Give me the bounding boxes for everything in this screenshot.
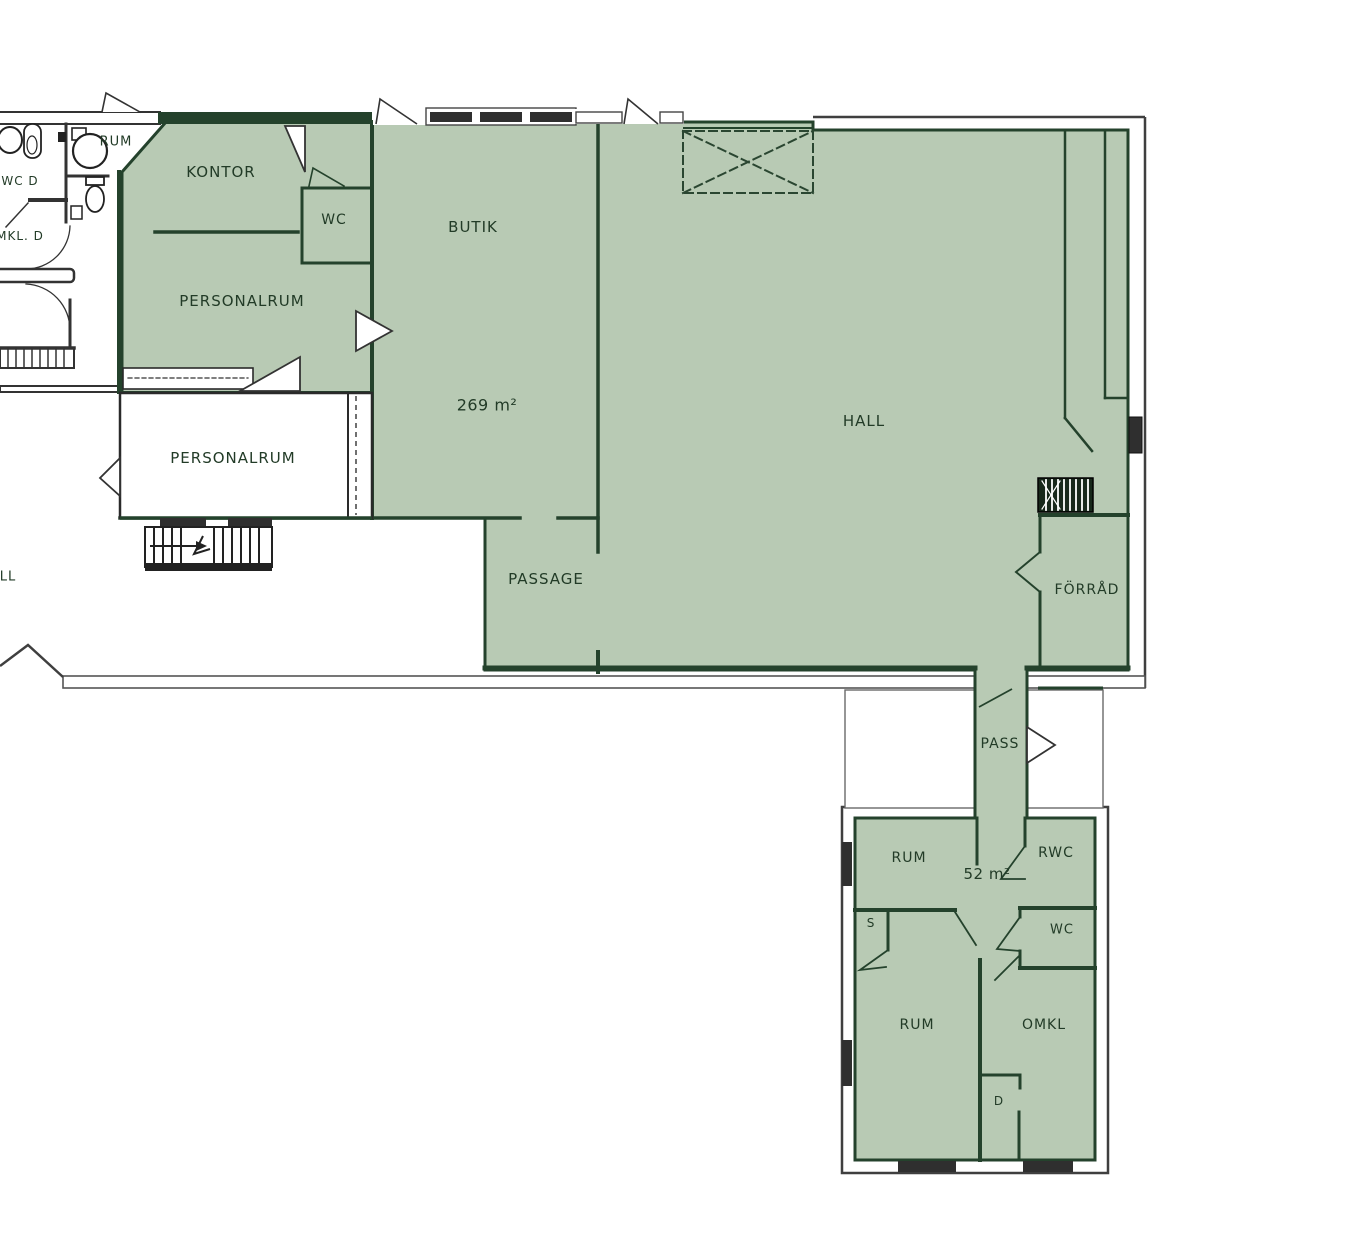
room-label-forrad: FÖRRÅD: [1055, 582, 1120, 598]
area-label-main: 269 m²: [457, 396, 518, 415]
room-label-hall-fragment: LL: [0, 570, 16, 585]
door-leaf: [6, 203, 28, 227]
door-swing: [102, 93, 140, 112]
window: [842, 842, 852, 886]
cistern-icon: [71, 206, 82, 219]
bench-hatch: [0, 348, 74, 368]
floor-plan: RUM WC D MKL. D KONTOR WC PERSONALRUM BU…: [0, 0, 1366, 1246]
room-label-passage: PASSAGE: [508, 570, 584, 588]
room-label-annex-wc: WC: [1050, 923, 1074, 938]
window: [1023, 1161, 1073, 1172]
room-label-annex-omkl: OMKL: [1022, 1017, 1066, 1033]
door-arc: [26, 284, 70, 330]
toilet-icon: [86, 186, 104, 212]
fixtures: [0, 124, 107, 219]
room-label-annex-rwc: RWC: [1038, 845, 1074, 861]
window: [430, 112, 472, 122]
window: [1129, 417, 1142, 453]
stairs-hatch: [1038, 478, 1093, 512]
room-label-personalrum-green: PERSONALRUM: [179, 292, 304, 310]
toilet-tank-icon: [86, 177, 104, 185]
window: [898, 1161, 956, 1172]
room-label-annex-s: S: [867, 916, 876, 930]
room-label-annex-rum-upper: RUM: [891, 850, 926, 866]
top-wall: [158, 112, 372, 124]
room-label-pass: PASS: [981, 736, 1020, 752]
room-label-hall: HALL: [843, 412, 885, 430]
room-label-rum-nw: RUM: [100, 135, 133, 150]
room-label-annex-rum-lower: RUM: [899, 1017, 934, 1033]
window: [160, 518, 206, 527]
window: [842, 1040, 852, 1086]
window: [530, 112, 572, 122]
window: [228, 518, 272, 527]
room-label-wc-d: WC D: [1, 174, 38, 188]
sink-icon: [0, 127, 22, 153]
area-label-annex: 52 m²: [964, 865, 1011, 883]
window: [480, 112, 522, 122]
room-label-annex-d: D: [994, 1094, 1004, 1108]
room-label-butik: BUTIK: [448, 218, 498, 236]
floor-plan-drawing: [0, 0, 1366, 1246]
exterior-stairs: [145, 527, 272, 571]
room-label-omkl-d: MKL. D: [0, 229, 44, 243]
canopy-edge: [0, 645, 63, 677]
room-label-wc-main: WC: [321, 212, 347, 228]
door-swing: [100, 458, 120, 496]
leased-area-fill: [122, 122, 1128, 1160]
room-label-personalrum-white: PERSONALRUM: [170, 449, 295, 467]
room-label-kontor: KONTOR: [186, 163, 255, 181]
wall-fitting-icon: [58, 132, 66, 142]
